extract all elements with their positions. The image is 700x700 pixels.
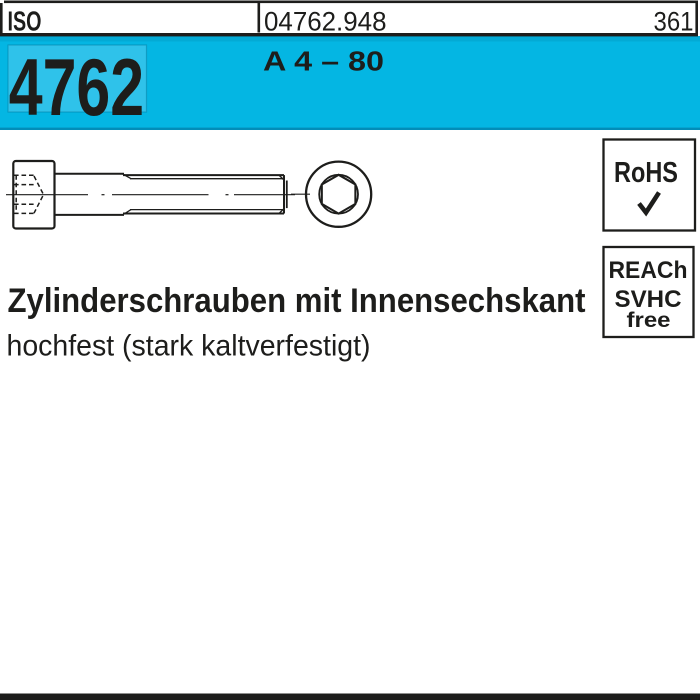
svg-text:REACh: REACh	[609, 257, 688, 284]
svg-text:04762.948: 04762.948	[264, 7, 387, 37]
svg-text:A 4 – 80: A 4 – 80	[263, 46, 384, 77]
svg-text:Zylinderschrauben mit Innensec: Zylinderschrauben mit Innensechskant	[8, 282, 586, 320]
svg-text:4762: 4762	[9, 43, 145, 133]
svg-text:361: 361	[654, 7, 694, 37]
svg-text:hochfest (stark kaltverfestigt: hochfest (stark kaltverfestigt)	[7, 330, 371, 363]
svg-text:RoHS: RoHS	[614, 157, 678, 189]
svg-text:ISO: ISO	[8, 6, 42, 37]
svg-text:free: free	[627, 309, 671, 332]
